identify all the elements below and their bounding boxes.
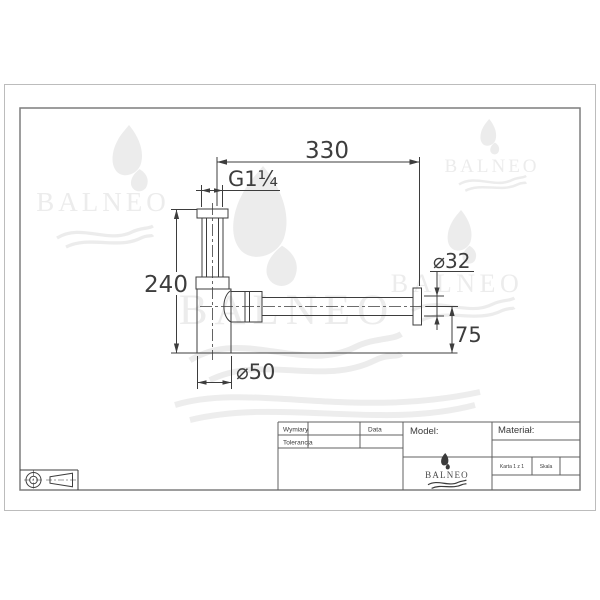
balneo-watermark-left: BALNEO — [36, 125, 170, 247]
karta-label: Karta 1 z 1 — [500, 464, 524, 470]
wave-icon — [412, 298, 514, 320]
dim-body-diameter-label: ⌀50 — [236, 360, 275, 384]
dim-75-label: 75 — [455, 323, 482, 347]
tolerancja-label: Tolerancja — [283, 440, 313, 447]
dimension-75: 75 — [426, 307, 482, 354]
projection-cone-icon — [46, 473, 77, 487]
wave-icon — [57, 226, 153, 247]
watermark-text: BALNEO — [179, 287, 395, 334]
wave-icon — [428, 480, 466, 488]
material-label: Materiał: — [498, 425, 534, 436]
balneo-logo-text: BALNEO — [425, 470, 469, 480]
balneo-logo: BALNEO — [425, 453, 469, 488]
wave-icon — [190, 334, 401, 380]
technical-drawing-svg: BALNEO BALNEO BALNEO BALNEO — [0, 0, 600, 600]
wave-icon — [175, 392, 480, 420]
title-block: Wymiary Data Tolerancja Model: Materiał:… — [278, 422, 580, 490]
model-label: Model: — [410, 426, 439, 437]
wymiary-label: Wymiary — [283, 427, 309, 434]
balneo-watermark-top-right: BALNEO — [444, 119, 539, 191]
dim-outlet-diameter-label: ⌀32 — [433, 249, 471, 273]
projection-symbol — [20, 470, 78, 490]
flame-icon — [441, 453, 450, 469]
dim-thread-label: G1¼ — [228, 167, 278, 191]
projection-circle-icon — [24, 471, 43, 490]
dimension-body-diameter: ⌀50 — [198, 356, 276, 389]
dim-240-label: 240 — [144, 272, 188, 298]
flame-icon — [480, 119, 499, 154]
watermark-text: BALNEO — [36, 187, 170, 217]
dimensions: 330 G1¼ 240 ⌀50 — [144, 138, 482, 389]
drawing-sheet-page: BALNEO BALNEO BALNEO BALNEO — [0, 0, 600, 600]
dim-330-label: 330 — [305, 138, 349, 164]
data-label: Data — [368, 427, 382, 434]
watermark-text: BALNEO — [391, 269, 523, 298]
flame-icon — [113, 125, 148, 191]
watermark-text: BALNEO — [444, 156, 539, 177]
wave-icon — [459, 176, 526, 191]
skala-label: Skala — [540, 464, 553, 470]
